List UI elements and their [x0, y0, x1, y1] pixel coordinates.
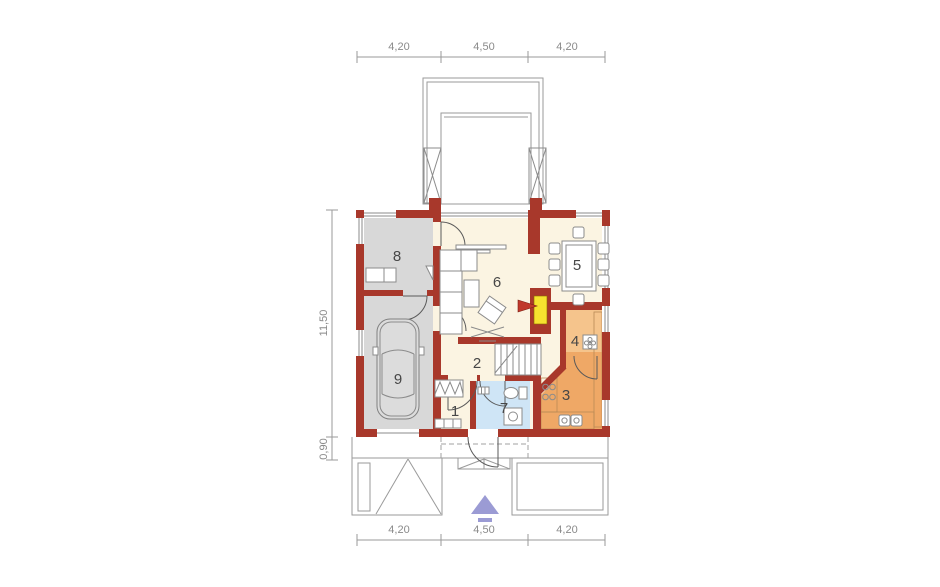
furniture-utility [366, 268, 396, 282]
mirror [373, 347, 378, 355]
dimension-top: 4,20 4,50 4,20 [357, 41, 605, 63]
chair [573, 294, 584, 305]
dimension-bottom: 4,20 4,50 4,20 [357, 524, 605, 546]
coffee-table [464, 280, 479, 307]
dim-top-left: 4,20 [388, 41, 409, 53]
entrance-arrow [471, 495, 499, 522]
window-utility-left [356, 218, 364, 244]
bench [435, 419, 461, 428]
window-garage-left [356, 330, 364, 356]
car [373, 319, 424, 419]
front-exterior [352, 437, 608, 522]
room-label-dining: 5 [573, 257, 581, 274]
driveway [352, 458, 442, 515]
dim-bottom-right: 4,20 [556, 524, 577, 536]
fireplace-firebox [534, 296, 547, 324]
dim-bottom-center: 4,50 [473, 524, 494, 536]
toilet-icon [504, 387, 527, 399]
room-label-utility: 8 [393, 248, 401, 265]
chair [598, 275, 609, 286]
window-kitchen-right-2 [602, 400, 610, 426]
garage-door-opening [377, 429, 419, 437]
chair [598, 243, 609, 254]
chair [549, 275, 560, 286]
window-kitchen-right-1 [602, 306, 610, 332]
mirror [419, 347, 424, 355]
floor-plan-page: 4,20 4,50 4,20 11,50 0,90 [0, 0, 940, 587]
stairs [495, 344, 541, 375]
window-utility-top [364, 210, 396, 218]
floor-plan-drawing: 4,20 4,50 4,20 11,50 0,90 [0, 0, 940, 587]
dim-left-total: 11,50 [318, 310, 330, 337]
room-label-pantry: 4 [571, 333, 579, 350]
room-label-entry: 1 [451, 403, 459, 420]
chair [598, 259, 609, 270]
radiator-icon [478, 387, 489, 394]
dimension-left: 11,50 0,90 [318, 210, 338, 460]
sideboard [456, 245, 506, 249]
door-front [468, 429, 498, 467]
room-label-wc: 7 [500, 400, 508, 417]
pantry-fan-icon [583, 335, 597, 349]
room-label-kitchen: 3 [562, 387, 570, 404]
chair [549, 243, 560, 254]
dim-left-front: 0,90 [318, 438, 330, 459]
room-label-living: 6 [493, 274, 501, 291]
rear-terrace [423, 78, 546, 204]
room-label-hall: 2 [473, 355, 481, 372]
chair [549, 259, 560, 270]
window-dining-top [576, 210, 602, 218]
dim-top-center: 4,50 [473, 41, 494, 53]
plinth-strip [352, 437, 608, 458]
terrace-glass-door [441, 210, 528, 218]
dim-top-right: 4,20 [556, 41, 577, 53]
chair [573, 227, 584, 238]
room-label-garage: 9 [394, 371, 402, 388]
dim-bottom-left: 4,20 [388, 524, 409, 536]
front-terrace [512, 458, 608, 515]
